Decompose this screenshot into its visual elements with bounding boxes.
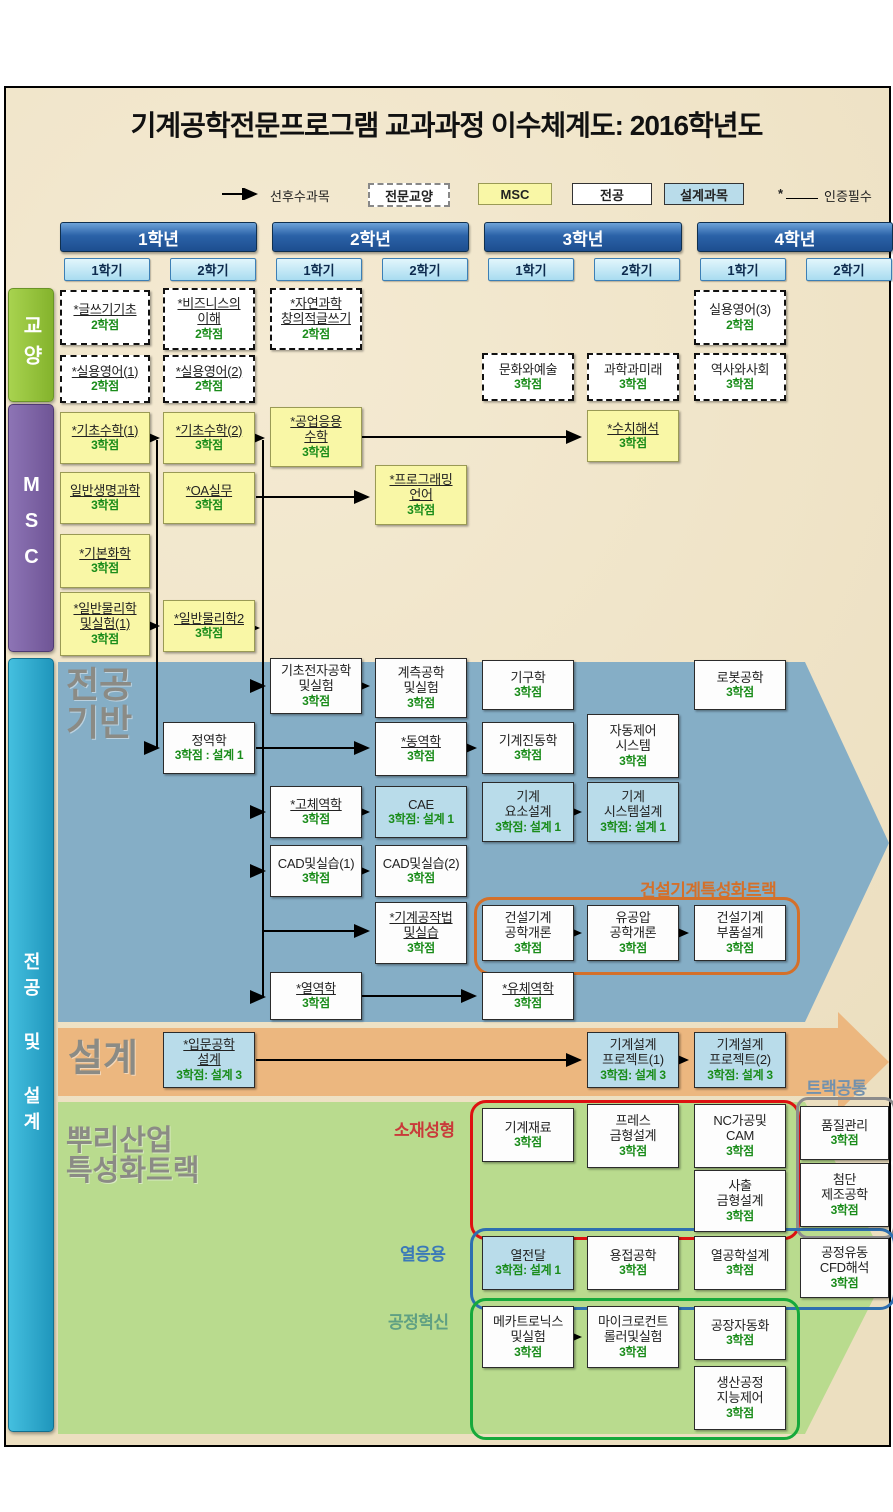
course-p19: *열역학3학점 [270,972,362,1020]
course-name: *글쓰기기초 [73,303,136,318]
course-credit: 2학점 [195,380,223,393]
course-name: 역사와사회 [711,363,769,378]
course-name: 건설기계부품설계 [717,911,764,940]
course-g9: 역사와사회3학점 [694,353,786,401]
course-credit: 3학점 [514,686,542,699]
course-m9: *일반물리학및실험(1)3학점 [60,592,150,656]
course-p9: *고체역학3학점 [270,786,362,838]
course-name: 사출금형설계 [717,1179,764,1208]
course-name: 마이크로컨트롤러및실험 [598,1315,668,1344]
course-t13: 공장자동화3학점 [694,1306,786,1360]
course-name: CAD및실습(1) [278,857,355,872]
course-m6: *OA실무3학점 [163,472,255,524]
course-name: 정역학 [192,734,227,749]
course-name: *고체역학 [290,798,341,813]
course-p3: 기구학3학점 [482,660,574,710]
course-name: *열역학 [296,982,336,997]
course-t8: 용접공학3학점 [587,1236,679,1290]
course-credit: 3학점 [302,446,330,459]
course-name: 과학과미래 [604,363,662,378]
course-name: 일반생명과학 [70,484,140,499]
course-p15: *기계공작법및실습3학점 [375,902,467,964]
course-m10: *일반물리학23학점 [163,600,255,652]
course-t9: 열공학설계3학점 [694,1236,786,1290]
course-name: *입문공학설계 [183,1038,234,1067]
course-name: *실용영어(2) [176,365,242,380]
course-t4: 사출금형설계3학점 [694,1170,786,1232]
course-credit: 3학점 [514,749,542,762]
course-credit: 3학점 [726,1210,754,1223]
course-name: 기계요소설계 [505,790,552,819]
course-g4: 실용영어(3)2학점 [694,290,786,345]
course-credit: 3학점 [619,378,647,391]
course-credit: 3학점 [91,633,119,646]
course-p6: *동역학3학점 [375,722,467,776]
course-credit: 3학점 [514,1136,542,1149]
course-credit: 3학점 [726,1145,754,1158]
course-t7: 열전달3학점: 설계 1 [482,1236,574,1290]
course-t14: 생산공정지능제어3학점 [694,1366,786,1430]
course-credit: 3학점 [407,504,435,517]
course-name: 기계설계프로젝트(2) [709,1038,771,1067]
course-name: *동역학 [401,735,441,750]
course-name: *자연과학창의적글쓰기 [281,297,351,326]
course-credit: 3학점 [91,499,119,512]
course-name: *일반물리학2 [174,612,244,627]
course-p17: 유공압공학개론3학점 [587,905,679,961]
course-d1: *입문공학설계3학점: 설계 3 [163,1032,255,1088]
course-p11: 기계요소설계3학점: 설계 1 [482,782,574,842]
course-name: 기구학 [511,671,546,686]
course-name: CAD및실습(2) [383,857,460,872]
course-credit: 3학점 [726,1264,754,1277]
course-credit: 3학점 [302,872,330,885]
course-credit: 2학점 [91,319,119,332]
course-name: *비즈니스의이해 [177,297,240,326]
course-p12: 기계시스템설계3학점: 설계 1 [587,782,679,842]
course-m7: *프로그래밍언어3학점 [375,465,467,525]
course-p16: 건설기계공학개론3학점 [482,905,574,961]
course-p10: CAE3학점: 설계 1 [375,786,467,838]
course-name: 계측공학및실험 [398,666,445,695]
course-credit: 2학점 [91,380,119,393]
course-credit: 3학점 [514,1346,542,1359]
course-g2: *비즈니스의이해2학점 [163,288,255,350]
course-g8: 과학과미래3학점 [587,353,679,401]
course-credit: 3학점 [726,378,754,391]
course-credit: 3학점: 설계 1 [388,813,453,826]
course-g5: *실용영어(1)2학점 [60,355,150,403]
course-name: NC가공및CAM [713,1114,766,1143]
course-credit: 3학점 [302,997,330,1010]
course-name: *기본화학 [79,547,130,562]
course-credit: 3학점 [514,942,542,955]
course-credit: 3학점 [195,499,223,512]
course-g1: *글쓰기기초2학점 [60,290,150,345]
course-name: 문화와예술 [499,363,557,378]
curriculum-map: 기계공학전문프로그램 교과과정 이수체계도: 2016학년도 선후수과목 전문교… [0,0,893,1512]
course-g6: *실용영어(2)2학점 [163,355,255,403]
course-credit: 3학점 [514,997,542,1010]
course-name: 메카트로닉스및실험 [493,1315,563,1344]
course-credit: 3학점 [195,439,223,452]
course-d2: 기계설계프로젝트(1)3학점: 설계 3 [587,1032,679,1088]
course-credit: 3학점 [619,1145,647,1158]
course-credit: 3학점: 설계 3 [600,1069,665,1082]
course-credit: 3학점: 설계 3 [176,1069,241,1082]
course-credit: 3학점 [831,1204,859,1217]
course-credit: 2학점 [302,328,330,341]
course-name: *OA실무 [186,484,232,499]
course-m2: *기초수학(2)3학점 [163,412,255,464]
course-t11: 메카트로닉스및실험3학점 [482,1306,574,1368]
course-p2: 계측공학및실험3학점 [375,658,467,718]
course-credit: 3학점 [195,627,223,640]
course-m1: *기초수학(1)3학점 [60,412,150,464]
course-name: 공장자동화 [711,1319,769,1334]
course-t2: 프레스금형설계3학점 [587,1104,679,1168]
course-p20: *유체역학3학점 [482,972,574,1020]
course-name: 공정유동CFD해석 [820,1246,869,1275]
course-m4: *수치해석3학점 [587,410,679,462]
course-credit: 3학점 [619,755,647,768]
course-name: 열공학설계 [711,1249,769,1264]
course-name: 건설기계공학개론 [505,911,552,940]
course-name: 용접공학 [610,1249,657,1264]
course-credit: 3학점 [302,813,330,826]
course-name: *유체역학 [502,982,553,997]
course-name: *수치해석 [607,422,658,437]
course-name: 프레스금형설계 [610,1114,657,1143]
course-d3: 기계설계프로젝트(2)3학점: 설계 3 [694,1032,786,1088]
course-name: 기계설계프로젝트(1) [602,1038,664,1067]
course-credit: 2학점 [726,319,754,332]
course-name: *공업응용수학 [290,415,341,444]
course-name: 자동제어시스템 [610,724,657,753]
course-credit: 3학점 [91,439,119,452]
course-name: 기계시스템설계 [604,790,662,819]
course-p4: 로봇공학3학점 [694,660,786,710]
course-name: *기초수학(2) [176,424,242,439]
course-name: 첨단제조공학 [821,1173,868,1202]
course-credit: 3학점 [726,1407,754,1420]
course-credit: 3학점 [831,1134,859,1147]
course-credit: 3학점 [619,942,647,955]
course-name: 기초전자공학및실험 [281,664,351,693]
course-credit: 3학점 [831,1277,859,1290]
course-credit: 3학점: 설계 1 [495,821,560,834]
course-g3: *자연과학창의적글쓰기2학점 [270,288,362,350]
course-credit: 3학점 : 설계 1 [175,749,244,762]
course-p18: 건설기계부품설계3학점 [694,905,786,961]
course-credit: 3학점: 설계 3 [707,1069,772,1082]
course-p5: 정역학3학점 : 설계 1 [163,722,255,774]
course-name: CAE [408,798,434,813]
course-credit: 3학점 [619,1346,647,1359]
course-t6: 첨단제조공학3학점 [800,1163,889,1227]
course-t10: 공정유동CFD해석3학점 [800,1238,889,1298]
course-credit: 3학점 [726,686,754,699]
course-t1: 기계재료3학점 [482,1108,574,1162]
course-credit: 3학점: 설계 1 [600,821,665,834]
course-t12: 마이크로컨트롤러및실험3학점 [587,1306,679,1368]
course-p14: CAD및실습(2)3학점 [375,845,467,897]
course-credit: 3학점 [407,750,435,763]
course-credit: 3학점 [619,437,647,450]
course-name: 유공압공학개론 [610,911,657,940]
course-credit: 3학점 [726,942,754,955]
course-name: *프로그래밍언어 [389,473,452,502]
course-name: 열전달 [511,1249,546,1264]
course-p1: 기초전자공학및실험3학점 [270,658,362,714]
course-credit: 3학점 [302,695,330,708]
course-credit: 3학점 [91,562,119,575]
course-name: *실용영어(1) [72,365,138,380]
course-credit: 3학점: 설계 1 [495,1264,560,1277]
course-name: 실용영어(3) [709,303,771,318]
course-credit: 3학점 [407,872,435,885]
course-credit: 3학점 [514,378,542,391]
course-boxes: *글쓰기기초2학점*비즈니스의이해2학점*자연과학창의적글쓰기2학점실용영어(3… [0,0,893,1512]
course-name: *기초수학(1) [72,424,138,439]
course-name: *기계공작법및실습 [389,911,452,940]
course-credit: 3학점 [407,697,435,710]
course-p8: 자동제어시스템3학점 [587,714,679,778]
course-m8: *기본화학3학점 [60,534,150,588]
course-name: *일반물리학및실험(1) [73,602,136,631]
course-name: 품질관리 [821,1119,868,1134]
course-m5: 일반생명과학3학점 [60,472,150,524]
course-credit: 3학점 [726,1334,754,1347]
course-credit: 3학점 [619,1264,647,1277]
course-credit: 3학점 [407,942,435,955]
course-t3: NC가공및CAM3학점 [694,1104,786,1168]
course-name: 생산공정지능제어 [717,1376,764,1405]
course-name: 기계재료 [505,1121,552,1136]
course-g7: 문화와예술3학점 [482,353,574,401]
course-credit: 2학점 [195,328,223,341]
course-name: 기계진동학 [499,734,557,749]
course-name: 로봇공학 [717,671,764,686]
course-p13: CAD및실습(1)3학점 [270,845,362,897]
course-p7: 기계진동학3학점 [482,722,574,774]
course-t5: 품질관리3학점 [800,1106,889,1160]
course-m3: *공업응용수학3학점 [270,407,362,467]
